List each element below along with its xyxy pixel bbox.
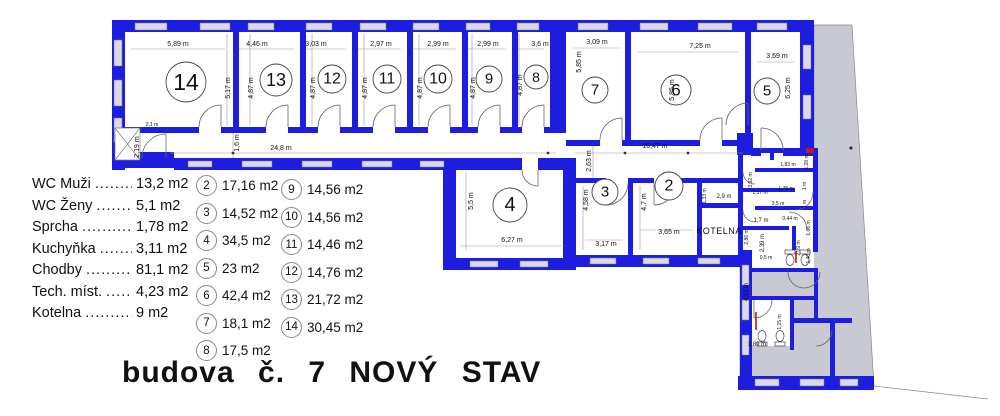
legend-row: Kotelna .......... 9 m2 (32, 305, 198, 327)
area-row: 217,16 m2 (196, 172, 278, 200)
dim-label: 3,69 m (766, 53, 788, 60)
legend-leader: ........... (96, 198, 132, 214)
kotelna-label: KOTELNA (696, 226, 742, 236)
dim-label: 7,25 m (689, 43, 711, 50)
area-row: 434,5 m2 (196, 227, 278, 255)
area-room-number: 11 (281, 234, 302, 255)
dim-label: 1,57 m (752, 190, 767, 196)
room-number: 3 (601, 184, 609, 201)
room-number: 4 (504, 194, 515, 216)
legend-leader: ........... (95, 176, 132, 192)
dim-label: 1,40 m (806, 248, 812, 263)
dim-label: 4,12 m (744, 283, 750, 301)
room-number: 9 (485, 71, 493, 88)
area-room-number: 3 (196, 203, 217, 224)
dim-label: 5,85 m (669, 79, 676, 101)
area-value: 23 m2 (222, 261, 260, 276)
legend-row: Tech. míst. ........ 4,23 m2 (32, 284, 198, 306)
room-number: 11 (379, 71, 396, 88)
dim-label: 3,5 m (772, 201, 785, 207)
dim-label: 10,47 m (642, 143, 667, 150)
area-row: 1114,46 m2 (281, 231, 363, 259)
dim-label: 1,78 m (778, 186, 793, 192)
dim-label: 3,6 m (531, 41, 549, 48)
area-row: 718,1 m2 (196, 310, 278, 338)
dim-label: 2,19 m (134, 136, 141, 158)
legend-label: Tech. míst. (32, 284, 102, 300)
room-number: 2 (665, 178, 674, 195)
legend-label: WC Ženy (32, 198, 92, 214)
legend-label: Sprcha (32, 219, 78, 235)
area-room-number: 7 (196, 313, 217, 334)
legend-row: WC Muži ........... 13,2 m2 (32, 176, 198, 198)
legend-value: 1,78 m2 (136, 219, 198, 235)
dim-label: 1,06 m (806, 220, 812, 235)
room-number: 7 (591, 82, 599, 99)
area-value: 34,5 m2 (222, 233, 271, 248)
area-row: 523 m2 (196, 255, 278, 283)
dim-label: 4,87 m (417, 77, 424, 99)
dim-label: 1 m (802, 200, 808, 208)
area-value: 14,56 m2 (307, 182, 363, 197)
dim-label: 4,46 m (246, 41, 268, 48)
dim-label: 5,5 m (468, 192, 475, 210)
area-value: 30,45 m2 (307, 320, 363, 335)
dim-label: 1,89 m (748, 342, 766, 348)
legend-label: Kotelna (32, 305, 81, 321)
dim-label: 2,39 m (760, 234, 766, 252)
dim-label: 6,25 m (785, 77, 792, 99)
area-row: 314,52 m2 (196, 200, 278, 228)
dim-label: 1,83 m (780, 162, 795, 168)
dim-label: 1,33 m (702, 188, 708, 203)
legend-leader: ......... (100, 241, 132, 257)
legend-value: 5,1 m2 (136, 198, 198, 214)
area-room-number: 13 (281, 289, 302, 310)
legend-leader: ........... (82, 219, 132, 235)
dim-label: 4,7 m (641, 193, 648, 211)
area-row: 1214,76 m2 (281, 259, 363, 287)
dim-label: 4,87 m (310, 77, 317, 99)
legend-leader: ........ (106, 284, 132, 300)
dim-label: 2,97 m (370, 41, 392, 48)
dim-label: 0,5 m (760, 255, 773, 261)
legend-row: Kuchyňka ......... 3,11 m2 (32, 241, 198, 263)
area-value: 21,72 m2 (307, 292, 363, 307)
dim-label: 5,85 m (576, 51, 583, 73)
dim-label: 1,7 m (753, 218, 768, 224)
room-number: 14 (173, 69, 199, 95)
legend-row: Sprcha ........... 1,78 m2 (32, 219, 198, 241)
area-room-number: 9 (281, 179, 302, 200)
area-row: 642,4 m2 (196, 282, 278, 310)
dim-label: 2,86 m (744, 229, 750, 244)
dim-label: 5,17 m (225, 77, 232, 99)
dim-label: 3,17 m (595, 241, 617, 248)
legend-row: WC Ženy ........... 5,1 m2 (32, 198, 198, 220)
legend-leader: .......... (85, 305, 132, 321)
room-number: 13 (266, 70, 286, 90)
area-value: 18,1 m2 (222, 316, 271, 331)
area-value: 14,56 m2 (307, 210, 363, 225)
dim-label: 2,99 m (477, 41, 499, 48)
room-areas-column-1: 217,16 m2314,52 m2434,5 m2523 m2642,4 m2… (196, 172, 278, 365)
legend-panel: WC Muži ........... 13,2 m2 WC Ženy ....… (32, 176, 198, 327)
dim-label: 2,9 m (716, 194, 731, 200)
legend-row: Chodby .......... 81,1 m2 (32, 262, 198, 284)
dim-label: 3,09 m (586, 39, 608, 46)
dim-label: 5,89 m (167, 41, 189, 48)
room-number: 12 (323, 71, 341, 88)
dim-label: 1,28 m (804, 154, 810, 169)
dim-label: 0,44 m (782, 216, 797, 222)
room-number: 8 (532, 69, 540, 85)
legend-leader: .......... (86, 262, 132, 278)
area-value: 42,4 m2 (222, 288, 271, 303)
dim-label: 2,1 m (146, 122, 159, 128)
room-number: 5 (763, 83, 771, 100)
legend-label: Chodby (32, 262, 82, 278)
dim-label: 4,58 m (583, 189, 590, 211)
room-areas-column-2: 914,56 m21014,56 m21114,46 m21214,76 m21… (281, 176, 363, 341)
legend-value: 13,2 m2 (136, 176, 198, 192)
area-room-number: 4 (196, 230, 217, 251)
legend-label: Kuchyňka (32, 241, 96, 257)
legend-value: 3,11 m2 (136, 241, 198, 257)
dim-label: 3,03 m (305, 41, 327, 48)
area-value: 17,16 m2 (222, 178, 278, 193)
legend-value: 9 m2 (136, 305, 198, 321)
dim-label: 1 m (802, 182, 808, 190)
legend-label: WC Muži (32, 176, 91, 192)
page-title: budova č. 7 NOVÝ STAV (122, 356, 541, 390)
area-room-number: 5 (196, 258, 217, 279)
area-room-number: 10 (281, 207, 302, 228)
dim-label: 24,8 m (270, 145, 292, 152)
dim-label: 4,87 m (362, 77, 369, 99)
area-value: 14,52 m2 (222, 206, 278, 221)
area-room-number: 14 (281, 317, 302, 338)
dim-label: 3,65 m (658, 229, 680, 236)
legend-value: 81,1 m2 (136, 262, 198, 278)
area-row: 914,56 m2 (281, 176, 363, 204)
dim-label: 4,87 m (517, 74, 524, 96)
area-row: 1430,45 m2 (281, 314, 363, 342)
area-value: 14,46 m2 (307, 237, 363, 252)
area-row: 1321,72 m2 (281, 286, 363, 314)
area-room-number: 12 (281, 262, 302, 283)
room-number: 10 (429, 71, 447, 88)
area-value: 14,76 m2 (307, 265, 363, 280)
dim-label: 2,99 m (427, 41, 449, 48)
dim-label: 2,09 m (796, 240, 802, 255)
area-row: 1014,56 m2 (281, 204, 363, 232)
area-room-number: 2 (196, 175, 217, 196)
area-room-number: 6 (196, 285, 217, 306)
legend-value: 4,23 m2 (136, 284, 198, 300)
dim-label: 3,92 m (748, 172, 754, 187)
dim-label: 4,87 m (248, 77, 255, 99)
dim-label: 4,87 m (470, 77, 477, 99)
dim-label: 2,63 m (586, 150, 593, 172)
dim-label: 1,6 m (234, 134, 241, 152)
dim-label: 6,27 m (501, 237, 523, 244)
dim-label: 1,15 m (777, 314, 783, 329)
